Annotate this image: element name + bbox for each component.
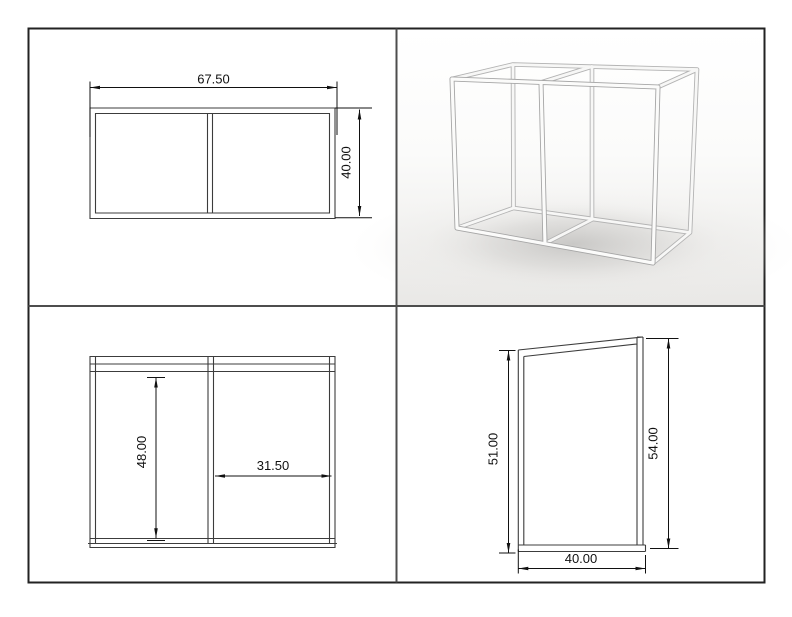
- dim-label-side-left-height: 51.00: [486, 433, 501, 466]
- front-dim-bay-width: 31.50: [215, 458, 332, 478]
- dim-label-side-right-height: 54.00: [646, 427, 661, 460]
- dim-label-plan-width: 67.50: [197, 72, 230, 87]
- dim-label-front-bay-width: 31.50: [257, 458, 290, 473]
- dim-label-side-bottom-depth: 40.00: [565, 551, 598, 566]
- plan-view: 67.50 40.00: [90, 72, 372, 219]
- side-dim-right-height: 54.00: [646, 339, 679, 549]
- side-frame-outline: [518, 337, 645, 552]
- plan-dim-depth: 40.00: [335, 108, 372, 218]
- side-dim-left-height: 51.00: [486, 351, 516, 554]
- side-view: 51.00 54.00 40.00: [486, 337, 679, 574]
- front-view: 48.00 31.50: [88, 357, 337, 548]
- plan-frame-outline: [90, 108, 335, 219]
- render-view: [350, 30, 792, 311]
- dim-label-front-height: 48.00: [134, 436, 149, 469]
- drawing-canvas: 67.50 40.00 48.00 31.50: [0, 0, 792, 612]
- front-frame-outline: [88, 357, 337, 548]
- cad-drawing-sheet: 67.50 40.00 48.00 31.50: [0, 0, 792, 612]
- front-dim-height: 48.00: [134, 378, 165, 541]
- dim-label-plan-depth: 40.00: [339, 146, 354, 179]
- side-dim-bottom-depth: 40.00: [518, 550, 645, 574]
- plan-dim-width: 67.50: [90, 72, 337, 138]
